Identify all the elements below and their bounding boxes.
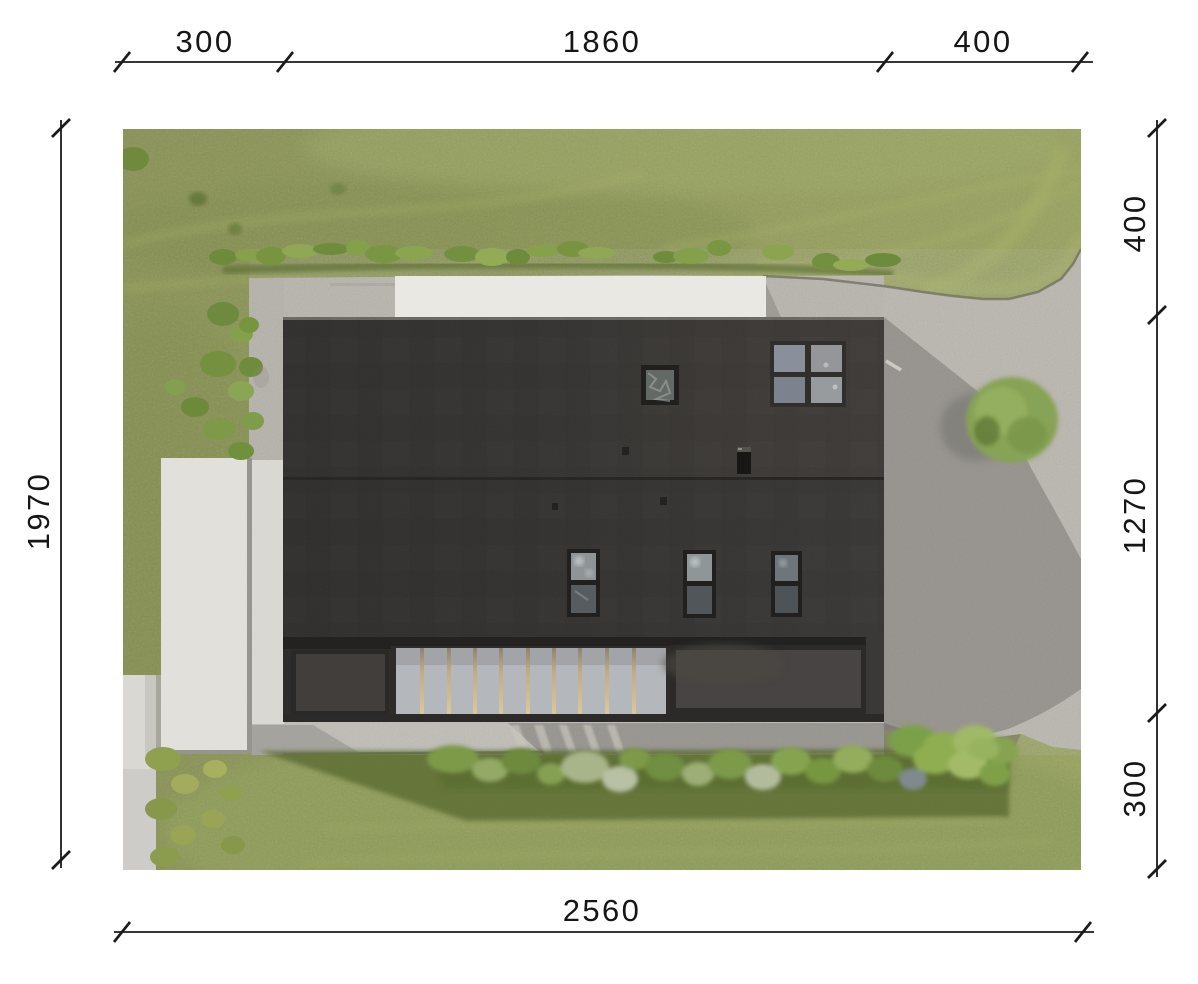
- svg-text:2560: 2560: [563, 893, 642, 928]
- svg-text:300: 300: [176, 24, 235, 59]
- svg-text:1860: 1860: [563, 24, 642, 59]
- svg-text:300: 300: [1117, 759, 1152, 818]
- svg-text:1270: 1270: [1117, 476, 1152, 555]
- svg-text:400: 400: [954, 24, 1013, 59]
- svg-text:400: 400: [1117, 194, 1152, 253]
- svg-text:1970: 1970: [21, 472, 56, 551]
